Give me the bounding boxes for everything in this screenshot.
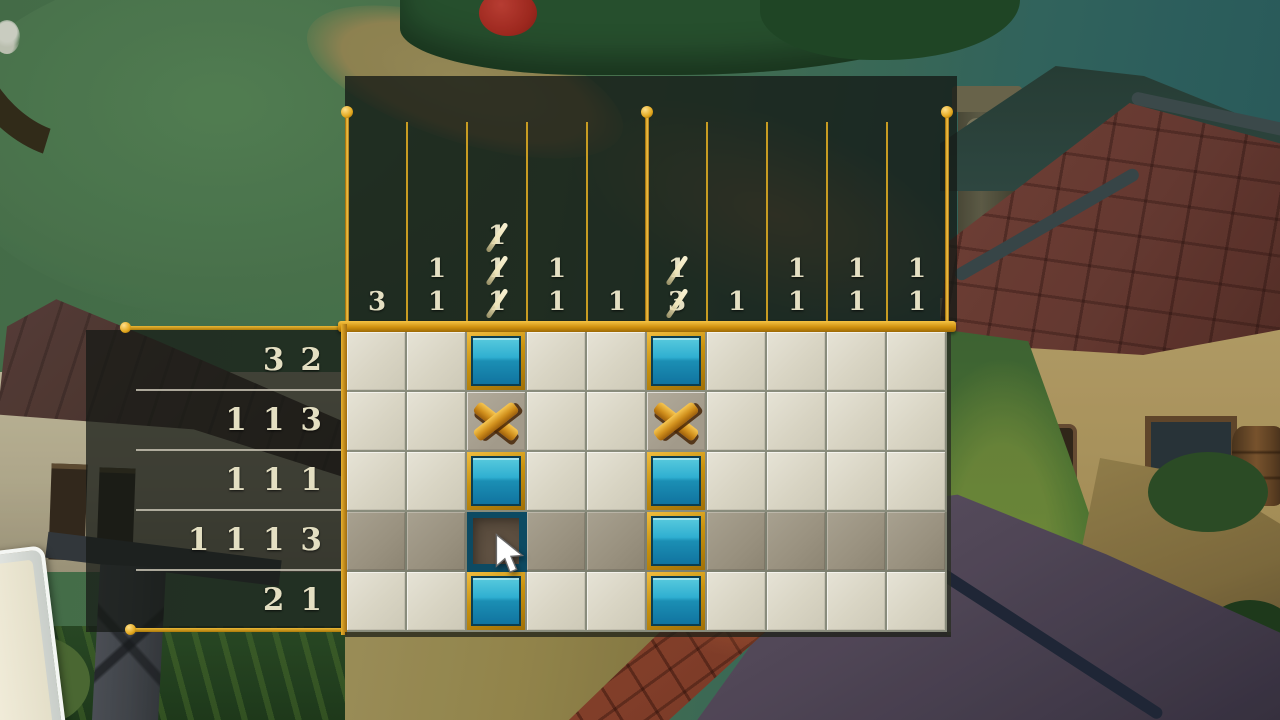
grid-cell-r4c9[interactable] — [827, 512, 887, 572]
grid-cell-r5c8[interactable] — [767, 572, 827, 632]
grid-cell-r2c7[interactable] — [707, 392, 767, 452]
filled-tile-face — [651, 456, 701, 506]
clue-number: 3 — [368, 289, 386, 316]
grid-cell-r2c4[interactable] — [527, 392, 587, 452]
filled-tile — [647, 452, 705, 510]
filled-tile — [647, 512, 705, 570]
grid-cell-r2c8[interactable] — [767, 392, 827, 452]
grid-cell-r4c8[interactable] — [767, 512, 827, 572]
filled-tile-face — [651, 516, 701, 566]
clue-number-completed: 1 — [668, 256, 686, 283]
column-clue-9: 11 — [827, 256, 887, 316]
grid-bottom-edge — [345, 632, 951, 637]
column-clue-10: 11 — [887, 256, 947, 316]
grid-cell-r4c2[interactable] — [407, 512, 467, 572]
game-stage: 311111111131111111 32113111111321 — [0, 0, 1280, 720]
grid-cell-r3c6[interactable] — [647, 452, 707, 512]
grid-cell-r3c8[interactable] — [767, 452, 827, 512]
filled-tile-face — [651, 576, 701, 626]
grid-cell-r1c2[interactable] — [407, 332, 467, 392]
grid-cell-r3c1[interactable] — [347, 452, 407, 512]
grid-cell-r5c5[interactable] — [587, 572, 647, 632]
filled-tile — [647, 572, 705, 630]
column-clue-4: 11 — [527, 256, 587, 316]
row-clue-4: 1113 — [86, 510, 345, 570]
x-mark-icon — [653, 398, 699, 444]
clue-number: 2 — [263, 582, 285, 618]
column-clue-7: 1 — [707, 289, 767, 316]
clue-number: 3 — [300, 522, 322, 558]
clue-number: 1 — [788, 256, 806, 283]
clue-number: 1 — [908, 289, 926, 316]
column-clue-1: 3 — [347, 289, 407, 316]
grid-cell-r5c9[interactable] — [827, 572, 887, 632]
grid-cell-r1c10[interactable] — [887, 332, 947, 392]
row-clue-5: 21 — [86, 570, 345, 630]
clue-number-completed: 3 — [668, 289, 686, 316]
column-clue-8: 11 — [767, 256, 827, 316]
clue-number: 1 — [225, 462, 247, 498]
clue-number: 1 — [428, 289, 446, 316]
frame-knob — [125, 624, 136, 635]
grid-cell-r2c10[interactable] — [887, 392, 947, 452]
grid-right-edge — [947, 332, 951, 635]
grid-cell-r4c5[interactable] — [587, 512, 647, 572]
clue-number: 1 — [263, 402, 285, 438]
clue-number: 1 — [263, 522, 285, 558]
clue-number: 3 — [263, 342, 285, 378]
grid-cell-r1c9[interactable] — [827, 332, 887, 392]
row-clues-panel: 32113111111321 — [86, 330, 345, 632]
grid-cell-r3c9[interactable] — [827, 452, 887, 512]
clue-number: 1 — [428, 256, 446, 283]
filled-tile-face — [471, 456, 521, 506]
x-mark-icon — [473, 398, 519, 444]
puzzle-grid — [347, 332, 947, 632]
grid-cell-r3c4[interactable] — [527, 452, 587, 512]
row-clue-3: 111 — [86, 450, 345, 510]
row-panel-top-frame — [126, 326, 346, 330]
grid-cell-r2c5[interactable] — [587, 392, 647, 452]
filled-tile — [467, 572, 525, 630]
grid-cell-r1c6[interactable] — [647, 332, 707, 392]
column-clue-5: 1 — [587, 289, 647, 316]
clue-number: 1 — [548, 289, 566, 316]
cursor-arrow-icon — [494, 533, 528, 577]
grid-cell-r1c7[interactable] — [707, 332, 767, 392]
grid-cell-r1c4[interactable] — [527, 332, 587, 392]
filled-tile-face — [471, 576, 521, 626]
clue-number: 1 — [608, 289, 626, 316]
grid-cell-r5c7[interactable] — [707, 572, 767, 632]
filled-tile-face — [651, 336, 701, 386]
grid-cell-r3c10[interactable] — [887, 452, 947, 512]
grid-cell-r5c6[interactable] — [647, 572, 707, 632]
clue-number: 1 — [188, 522, 210, 558]
filled-tile — [647, 332, 705, 390]
clue-number-completed: 1 — [488, 289, 506, 316]
grid-cell-r4c4[interactable] — [527, 512, 587, 572]
clue-number: 1 — [300, 462, 322, 498]
grid-cell-r5c2[interactable] — [407, 572, 467, 632]
grid-cell-r2c1[interactable] — [347, 392, 407, 452]
grid-cell-r5c4[interactable] — [527, 572, 587, 632]
clue-number: 1 — [908, 256, 926, 283]
grid-cell-r3c2[interactable] — [407, 452, 467, 512]
clue-number-completed: 1 — [488, 223, 506, 250]
grid-cell-r3c5[interactable] — [587, 452, 647, 512]
column-clue-3: 111 — [467, 223, 527, 316]
clue-number: 1 — [788, 289, 806, 316]
clue-number: 1 — [225, 522, 247, 558]
filled-tile-face — [471, 336, 521, 386]
grid-cell-r1c8[interactable] — [767, 332, 827, 392]
grid-cell-r1c5[interactable] — [587, 332, 647, 392]
clue-number: 1 — [225, 402, 247, 438]
grid-cell-r5c3[interactable] — [467, 572, 527, 632]
clue-number: 1 — [300, 582, 322, 618]
column-clues-panel: 311111111131111111 — [345, 76, 957, 322]
grid-cell-r2c3[interactable] — [467, 392, 527, 452]
clue-number-completed: 1 — [488, 256, 506, 283]
grid-cell-r5c1[interactable] — [347, 572, 407, 632]
row-clue-2: 113 — [86, 390, 345, 450]
grid-cell-r3c7[interactable] — [707, 452, 767, 512]
clue-number: 1 — [263, 462, 285, 498]
frame-knob — [120, 322, 131, 333]
grid-cell-r2c6[interactable] — [647, 392, 707, 452]
clue-number: 1 — [728, 289, 746, 316]
grid-top-frame — [338, 321, 956, 332]
row-clue-1: 32 — [86, 330, 345, 390]
grid-cell-r2c9[interactable] — [827, 392, 887, 452]
grid-cell-r2c2[interactable] — [407, 392, 467, 452]
filled-tile — [467, 452, 525, 510]
column-clue-2: 11 — [407, 256, 467, 316]
grid-cell-r5c10[interactable] — [887, 572, 947, 632]
clue-number: 2 — [300, 342, 322, 378]
clue-number: 1 — [848, 289, 866, 316]
grid-cell-r4c7[interactable] — [707, 512, 767, 572]
grid-cell-r1c3[interactable] — [467, 332, 527, 392]
column-clue-6: 13 — [647, 256, 707, 316]
side-panel-inner — [0, 560, 53, 720]
clue-number: 3 — [300, 402, 322, 438]
grid-cell-r4c10[interactable] — [887, 512, 947, 572]
grid-cell-r3c3[interactable] — [467, 452, 527, 512]
filled-tile — [467, 332, 525, 390]
clue-number: 1 — [548, 256, 566, 283]
grid-cell-r4c6[interactable] — [647, 512, 707, 572]
grid-cell-r1c1[interactable] — [347, 332, 407, 392]
clue-number: 1 — [848, 256, 866, 283]
row-panel-bottom-frame — [131, 628, 346, 632]
grid-cell-r4c1[interactable] — [347, 512, 407, 572]
